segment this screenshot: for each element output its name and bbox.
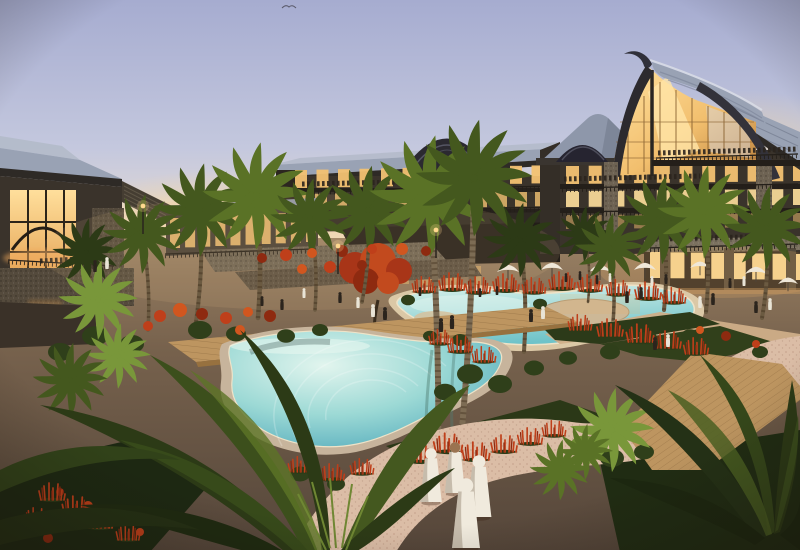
resort-rendering-image (0, 0, 800, 550)
vignette (0, 0, 800, 550)
resort-scene (0, 0, 800, 550)
